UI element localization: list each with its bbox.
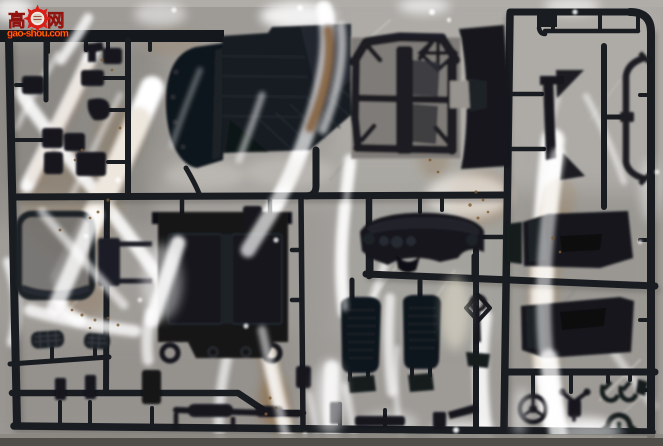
svg-text:gao-shou.com: gao-shou.com (7, 29, 69, 40)
svg-text:高: 高 (8, 11, 26, 31)
svg-text:网: 网 (47, 11, 65, 31)
